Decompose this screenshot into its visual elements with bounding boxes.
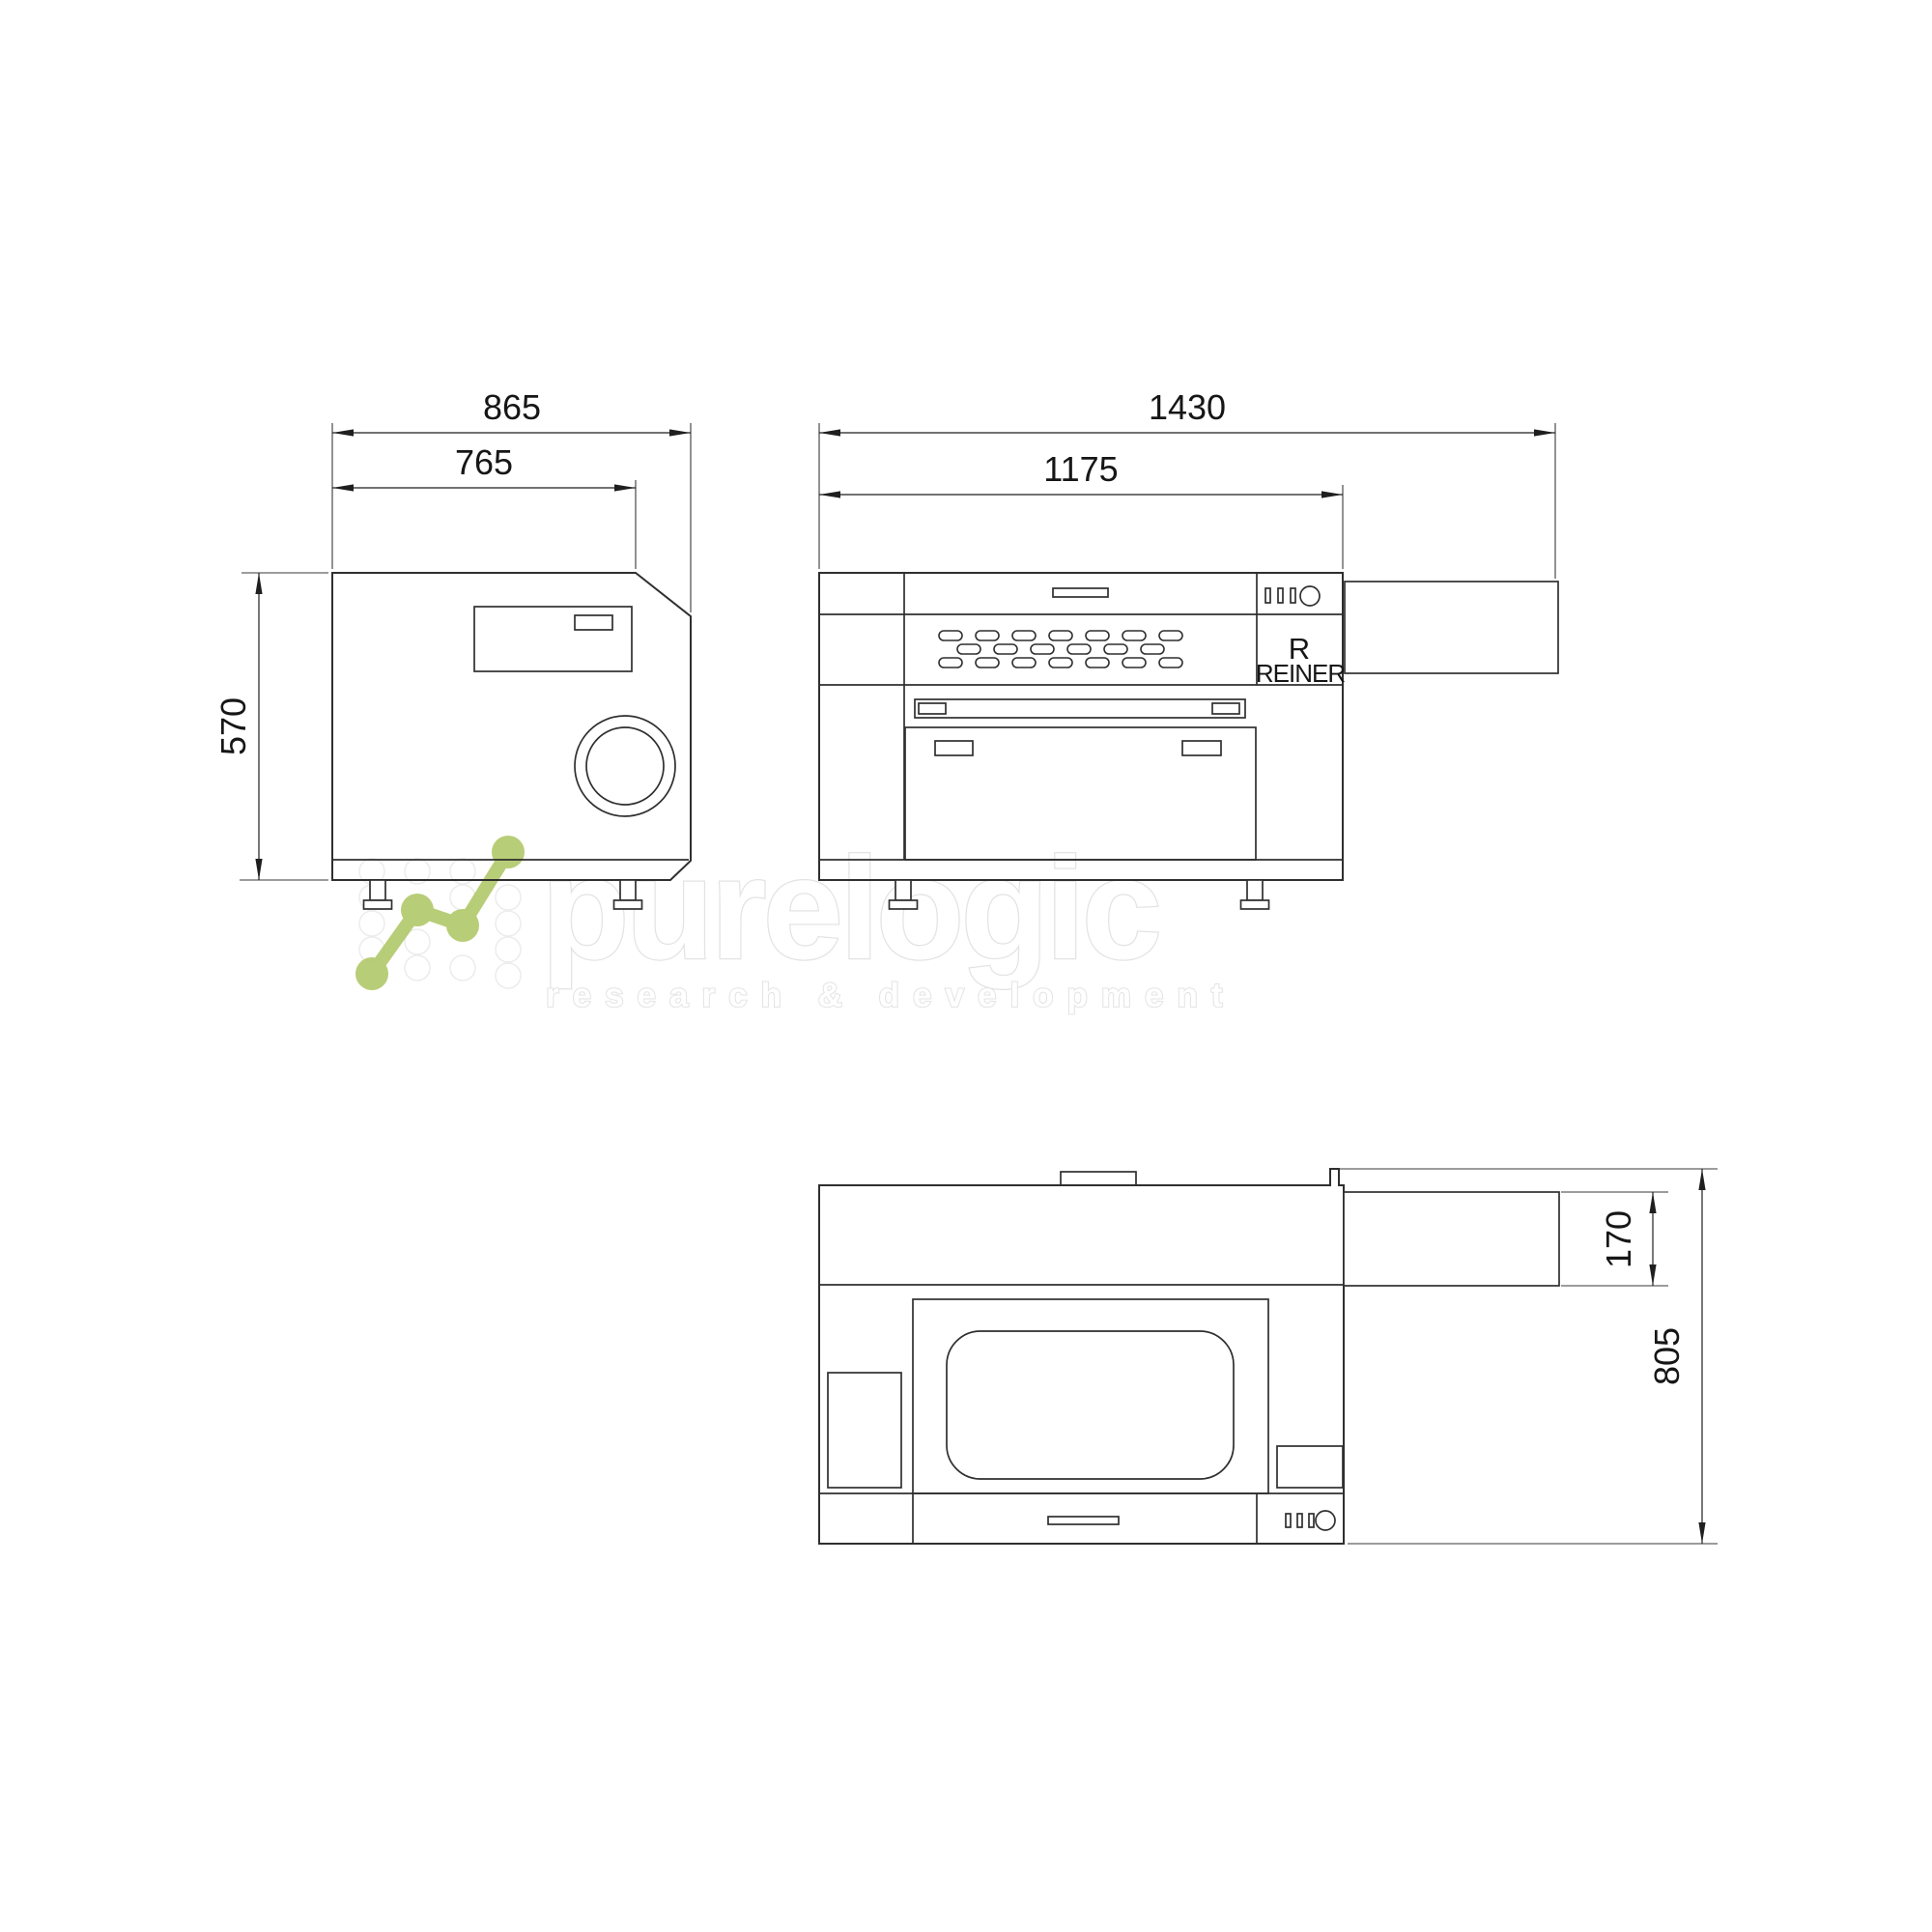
- top-lid-window: [947, 1331, 1234, 1479]
- machine-dimension-drawing: purelogic research & development 865 765: [0, 0, 1932, 1932]
- dimension-765: 765: [332, 442, 636, 569]
- dim-label-765: 765: [455, 442, 513, 482]
- dim-label-170: 170: [1599, 1210, 1638, 1268]
- watermark-tagline: research & development: [546, 977, 1236, 1014]
- indicator-bar-icon: [1265, 588, 1270, 603]
- top-right-panel: [1277, 1446, 1343, 1488]
- indicator-bar-icon: [1286, 1514, 1291, 1527]
- dim-label-865: 865: [483, 387, 541, 427]
- indicator-bar-icon: [1309, 1514, 1314, 1527]
- top-view: 170 805: [819, 1169, 1718, 1544]
- brand-name: REINER: [1256, 659, 1345, 688]
- indicator-bar-icon: [1297, 1514, 1302, 1527]
- dimension-1175: 1175: [819, 449, 1343, 569]
- top-control-panel: [1286, 1511, 1335, 1530]
- side-panel-display: [575, 615, 612, 630]
- side-exhaust-inner: [586, 727, 664, 805]
- side-panel: [474, 607, 632, 671]
- indicator-bar-icon: [1291, 588, 1295, 603]
- front-extension-table: [1345, 582, 1558, 673]
- front-rail: [915, 699, 1245, 718]
- door-handle-left: [935, 741, 973, 755]
- front-vent-slots: [939, 631, 1182, 668]
- front-control-panel: [1265, 586, 1320, 606]
- dimension-570: 570: [213, 573, 328, 880]
- purelogic-watermark: purelogic research & development: [355, 827, 1236, 1014]
- indicator-bar-icon: [1278, 588, 1283, 603]
- top-lid: [913, 1299, 1268, 1493]
- top-left-panel: [828, 1373, 901, 1488]
- dim-label-1430: 1430: [1149, 387, 1226, 427]
- top-front-handle: [1048, 1517, 1119, 1524]
- front-foot-right: [1241, 880, 1269, 909]
- dimension-170: 170: [1561, 1192, 1668, 1286]
- side-exhaust-outer: [575, 716, 675, 816]
- top-extension-table: [1344, 1192, 1559, 1286]
- dim-label-1175: 1175: [1043, 449, 1118, 489]
- top-rear-tab: [1061, 1172, 1136, 1185]
- logo-dot-grid-icon: [355, 836, 525, 990]
- dim-label-805: 805: [1647, 1327, 1687, 1385]
- dim-label-570: 570: [213, 697, 253, 755]
- drawing-canvas: purelogic research & development 865 765: [0, 0, 1932, 1932]
- power-button-icon: [1316, 1511, 1335, 1530]
- front-lid-handle: [1053, 588, 1108, 597]
- power-button-icon: [1300, 586, 1320, 606]
- dimension-865: 865: [332, 387, 691, 612]
- dimension-1430: 1430: [819, 387, 1555, 579]
- door-handle-right: [1182, 741, 1221, 755]
